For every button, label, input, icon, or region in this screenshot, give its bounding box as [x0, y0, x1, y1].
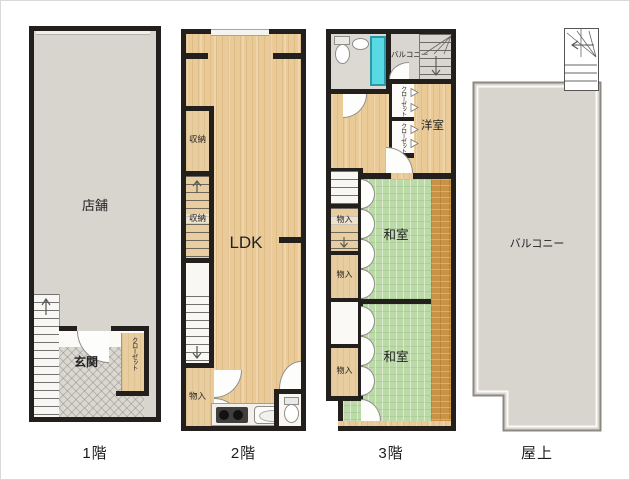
- staircase-up: 収納: [186, 176, 210, 258]
- floorplan-image: 店舗 玄関 クローゼット 収納: [0, 0, 630, 480]
- ldk-room-label: LDK: [216, 234, 276, 253]
- entrance-room-label: 玄関: [62, 356, 110, 369]
- bathroom: [331, 34, 388, 89]
- closet: クローゼット: [389, 84, 414, 117]
- first-floor-plan: 店舗 玄関 クローゼット: [29, 26, 161, 422]
- wood-strip: [431, 179, 451, 421]
- storage-label: 物入: [331, 367, 358, 376]
- storage-closet: 物入: [331, 255, 358, 298]
- entrance-closet: クローゼット: [121, 333, 145, 391]
- stairs-down-arrow-icon: [191, 345, 203, 361]
- floor-label-1f: 1階: [29, 442, 161, 463]
- staircase: [331, 171, 358, 204]
- building-notch: [326, 401, 338, 431]
- closet-label: クローゼット: [399, 123, 406, 153]
- empty-cell: [331, 302, 358, 344]
- storage-over-stairs: 物入: [331, 208, 358, 251]
- floor-label-3f: 3階: [326, 442, 456, 463]
- western-room-label: 洋室: [414, 120, 451, 133]
- floor-label-2f: 2階: [181, 442, 306, 463]
- washbasin-icon: [352, 38, 369, 50]
- storage-label: 物入: [331, 271, 358, 280]
- roof-balcony: [472, 81, 602, 432]
- storage-label: 物入: [331, 216, 358, 225]
- roof-stairs-icon: [419, 34, 452, 79]
- window: [36, 31, 150, 35]
- storage-closet: 物入: [331, 348, 358, 396]
- under-stairs-storage-label: 収納: [186, 214, 209, 223]
- entrance-closet-label: クローゼット: [130, 337, 137, 370]
- bifold-door-icon: [411, 88, 419, 97]
- door-swing-arc: [279, 361, 301, 389]
- second-floor-plan: 収納 収納 物入 LDK: [181, 29, 306, 431]
- staircase: [34, 294, 60, 417]
- staircase-down: [186, 296, 210, 363]
- door-swing-arc: [214, 370, 242, 398]
- storage-closet: 物入: [186, 368, 209, 426]
- window: [211, 29, 269, 36]
- stove-icon: [216, 407, 248, 423]
- stairs-up-arrow-icon: [40, 296, 52, 316]
- storage-label: 収納: [186, 135, 209, 144]
- door-swing-arc: [343, 94, 367, 118]
- toilet-room: [279, 394, 301, 426]
- japanese-room-2-extension: [343, 398, 361, 421]
- stairs-down-arrow-icon: [339, 236, 349, 250]
- shower-unit-icon: [370, 36, 386, 86]
- stair-landing: [186, 263, 210, 296]
- bifold-door-icon: [411, 103, 419, 112]
- storage-closet: 収納: [186, 111, 210, 171]
- bifold-door-icon: [411, 139, 419, 148]
- roof-balcony-label: バルコニー: [487, 238, 587, 250]
- floor-label-roof: 屋上: [472, 442, 602, 463]
- storage-label: 物入: [186, 392, 209, 401]
- third-floor-plan: バルコニー クローゼット クローゼット 洋室: [326, 29, 456, 431]
- stairs-up-arrow-icon: [191, 178, 203, 194]
- shop-room-label: 店舗: [34, 199, 156, 213]
- roof-stairs-icon: [564, 28, 599, 91]
- closet-label: クローゼット: [399, 86, 406, 116]
